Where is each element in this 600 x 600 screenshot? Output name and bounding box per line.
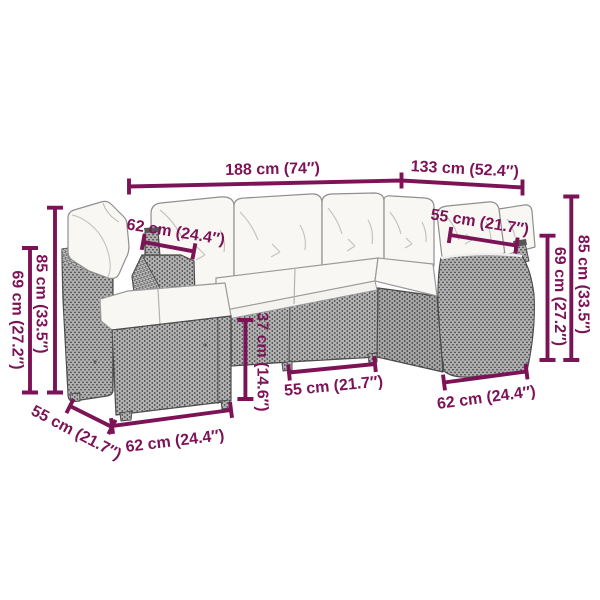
svg-text:69 cm (27.2″): 69 cm (27.2″) (551, 247, 568, 346)
svg-text:62 cm (24.4″): 62 cm (24.4″) (125, 427, 226, 456)
svg-text:188 cm (74″): 188 cm (74″) (225, 160, 320, 179)
svg-text:37 cm (14.6″): 37 cm (14.6″) (254, 312, 271, 411)
svg-text:62 cm (24.4″): 62 cm (24.4″) (436, 383, 537, 413)
svg-text:133 cm (52.4″): 133 cm (52.4″) (410, 158, 519, 181)
svg-text:55 cm (21.7″): 55 cm (21.7″) (283, 373, 383, 399)
svg-text:85 cm (33.5″): 85 cm (33.5″) (33, 254, 50, 353)
svg-text:69 cm (27.2″): 69 cm (27.2″) (9, 270, 26, 369)
svg-text:85 cm (33.5″): 85 cm (33.5″) (575, 235, 592, 334)
